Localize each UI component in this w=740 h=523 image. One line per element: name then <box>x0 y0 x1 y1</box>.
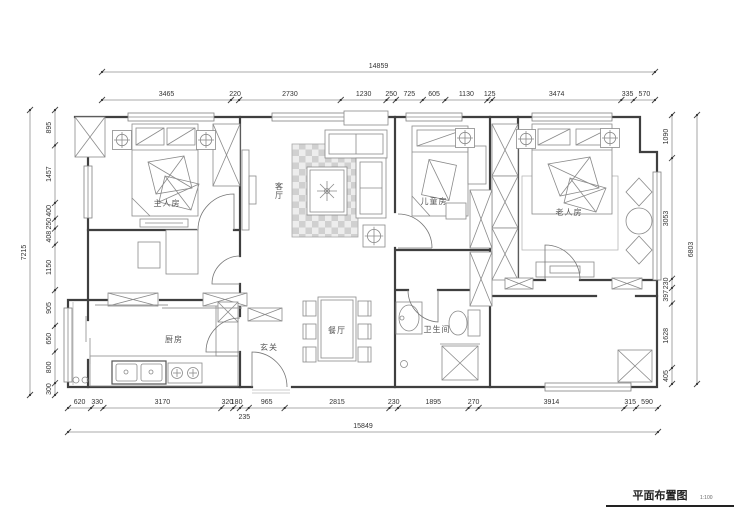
dimension-label: 315 <box>624 399 636 406</box>
dimension-label: 408 <box>46 231 53 243</box>
ceiling-lamp-icon <box>601 129 620 148</box>
drawing-scale: 1:100 <box>700 495 713 501</box>
dimension-label: 570 <box>639 91 651 98</box>
ceiling-lamp-icon <box>456 129 475 148</box>
ceiling-lamp-icon <box>197 131 216 150</box>
room-label-master: 主人房 <box>154 198 181 208</box>
sink-double <box>112 361 166 384</box>
wardrobe-icon <box>492 176 518 228</box>
dimension-label: 125 <box>484 91 496 98</box>
dimension-label: 2815 <box>329 399 345 406</box>
dimension-label: 2730 <box>282 91 298 98</box>
drawing-title: 平面布置图 <box>633 488 688 502</box>
desk <box>468 146 486 184</box>
ceiling-lamp-icon <box>363 225 385 247</box>
dimension-label: 230 <box>663 277 670 289</box>
dimension-label: 965 <box>261 399 273 406</box>
dimension-label: 650 <box>46 333 53 345</box>
dimension-label: 235 <box>239 414 251 421</box>
dimension-label: 1130 <box>459 91 474 98</box>
dimension-label: 3053 <box>663 211 670 227</box>
dimension-label: 3474 <box>549 91 565 98</box>
dimension-label: 250 <box>385 91 397 98</box>
stove <box>168 363 202 383</box>
cabinet-icon <box>618 350 652 382</box>
room-label-elder: 老人房 <box>556 207 583 217</box>
dimension-label: 905 <box>46 302 53 314</box>
cabinet-icon <box>505 278 533 289</box>
cabinet-icon <box>218 302 238 322</box>
dimension-label: 270 <box>468 399 480 406</box>
desk <box>166 230 198 274</box>
window <box>532 113 612 121</box>
dimension-label: 800 <box>46 361 53 373</box>
dimension-label: 1895 <box>425 399 441 406</box>
window <box>406 113 462 121</box>
window <box>653 172 661 280</box>
dimension-label: 15849 <box>353 423 373 430</box>
dimension-label: 1628 <box>663 328 670 344</box>
dimension-label: 620 <box>74 399 86 406</box>
background <box>0 0 740 523</box>
wardrobe-icon <box>492 124 518 176</box>
dimension-label: 1230 <box>356 91 372 98</box>
dimension-label: 250 <box>46 218 53 230</box>
window <box>64 308 72 382</box>
wardrobe-icon <box>213 124 240 186</box>
cabinet <box>344 111 388 125</box>
dimension-label: 3465 <box>159 91 175 98</box>
shower-tray-icon <box>442 346 478 380</box>
ceiling-lamp-icon <box>113 131 132 150</box>
dimension-label: 330 <box>91 399 103 406</box>
dimension-label: 335 <box>622 91 634 98</box>
dimension-label: 180 <box>231 399 243 406</box>
wardrobe-icon <box>470 190 492 248</box>
wardrobe-icon <box>470 252 492 306</box>
floor-plan-canvas: 3465220273012302507256051130125347433557… <box>0 0 740 523</box>
dimension-label: 230 <box>388 399 400 406</box>
dimension-label: 725 <box>403 91 415 98</box>
dimension-label: 605 <box>428 91 440 98</box>
ceiling-lamp-icon <box>517 130 536 149</box>
floor-plan-page: 3465220273012302507256051130125347433557… <box>0 0 740 523</box>
dimension-label: 300 <box>46 383 53 395</box>
wardrobe-icon <box>492 228 518 280</box>
room-label-living: 客厅 <box>275 181 284 200</box>
room-label-kitchen: 厨房 <box>165 334 183 344</box>
side-table <box>446 203 466 219</box>
dimension-label: 3914 <box>544 399 560 406</box>
window <box>84 166 92 218</box>
column-icon <box>75 117 105 157</box>
bed-double <box>532 124 612 214</box>
plant-icon <box>317 181 337 201</box>
dimension-label: 7215 <box>21 245 28 261</box>
window <box>272 113 350 121</box>
beam-icon <box>108 293 158 306</box>
desk <box>138 242 160 268</box>
dimension-label: 14859 <box>369 63 389 70</box>
dimension-label: 590 <box>641 399 653 406</box>
room-label-bathroom: 卫生间 <box>424 324 451 334</box>
dimension-label: 1150 <box>46 260 53 275</box>
room-label-foyer: 玄关 <box>260 342 278 352</box>
room-label-dining: 餐厅 <box>328 326 346 335</box>
dimension-label: 405 <box>663 370 670 382</box>
room-label-children: 儿童房 <box>421 196 448 206</box>
dimension-label: 1090 <box>663 129 670 145</box>
shoe-cabinet-icon <box>248 308 282 321</box>
window <box>128 113 214 121</box>
dimension-label: 1457 <box>46 166 53 182</box>
dimension-label: 400 <box>46 205 53 217</box>
dimension-label: 6803 <box>688 242 695 258</box>
dimension-label: 895 <box>46 122 53 134</box>
dimension-label: 397 <box>663 290 670 302</box>
dimension-label: 3170 <box>155 399 171 406</box>
window <box>545 383 631 391</box>
dimension-label: 220 <box>229 91 241 98</box>
cabinet-icon <box>612 278 642 289</box>
